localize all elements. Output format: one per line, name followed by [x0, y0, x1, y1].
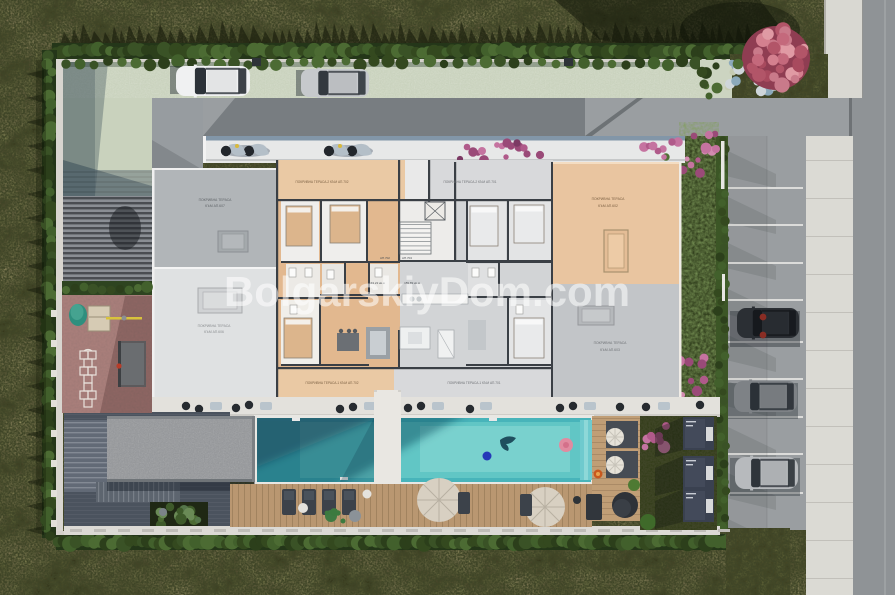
svg-text:КЪМ АП.607: КЪМ АП.607: [205, 204, 225, 208]
svg-text:КЪМ АП.602: КЪМ АП.602: [598, 204, 618, 208]
svg-text:ПОКРИВНА ТЕРАСА: ПОКРИВНА ТЕРАСА: [592, 197, 626, 201]
svg-text:BolgarskiyDom.com: BolgarskiyDom.com: [224, 268, 630, 315]
svg-text:ПОКРИВНА ТЕРАСА: ПОКРИВНА ТЕРАСА: [594, 341, 628, 345]
svg-text:ПОКРИВНА ТЕРАСА: ПОКРИВНА ТЕРАСА: [199, 198, 233, 202]
svg-text:АП.702: АП.702: [380, 256, 390, 260]
svg-text:КЪМ АП.606: КЪМ АП.606: [204, 330, 224, 334]
svg-text:ПОКРИВНА ТЕРАСА-2 КЪМ АП.701: ПОКРИВНА ТЕРАСА-2 КЪМ АП.701: [443, 180, 496, 184]
svg-text:ПОКРИВНА ТЕРАСА-1 КЪМ АП.701: ПОКРИВНА ТЕРАСА-1 КЪМ АП.701: [447, 381, 500, 385]
svg-text:ПОКРИВНА ТЕРАСА: ПОКРИВНА ТЕРАСА: [198, 324, 232, 328]
svg-text:КЪМ АП.603: КЪМ АП.603: [600, 348, 620, 352]
svg-text:АП.704: АП.704: [402, 256, 412, 260]
svg-text:ПОКРИВНА ТЕРАСА-2 КЪМ АП.702: ПОКРИВНА ТЕРАСА-2 КЪМ АП.702: [295, 180, 348, 184]
svg-text:ПОКРИВНА ТЕРАСА-1 КЪМ АП.702: ПОКРИВНА ТЕРАСА-1 КЪМ АП.702: [305, 381, 358, 385]
